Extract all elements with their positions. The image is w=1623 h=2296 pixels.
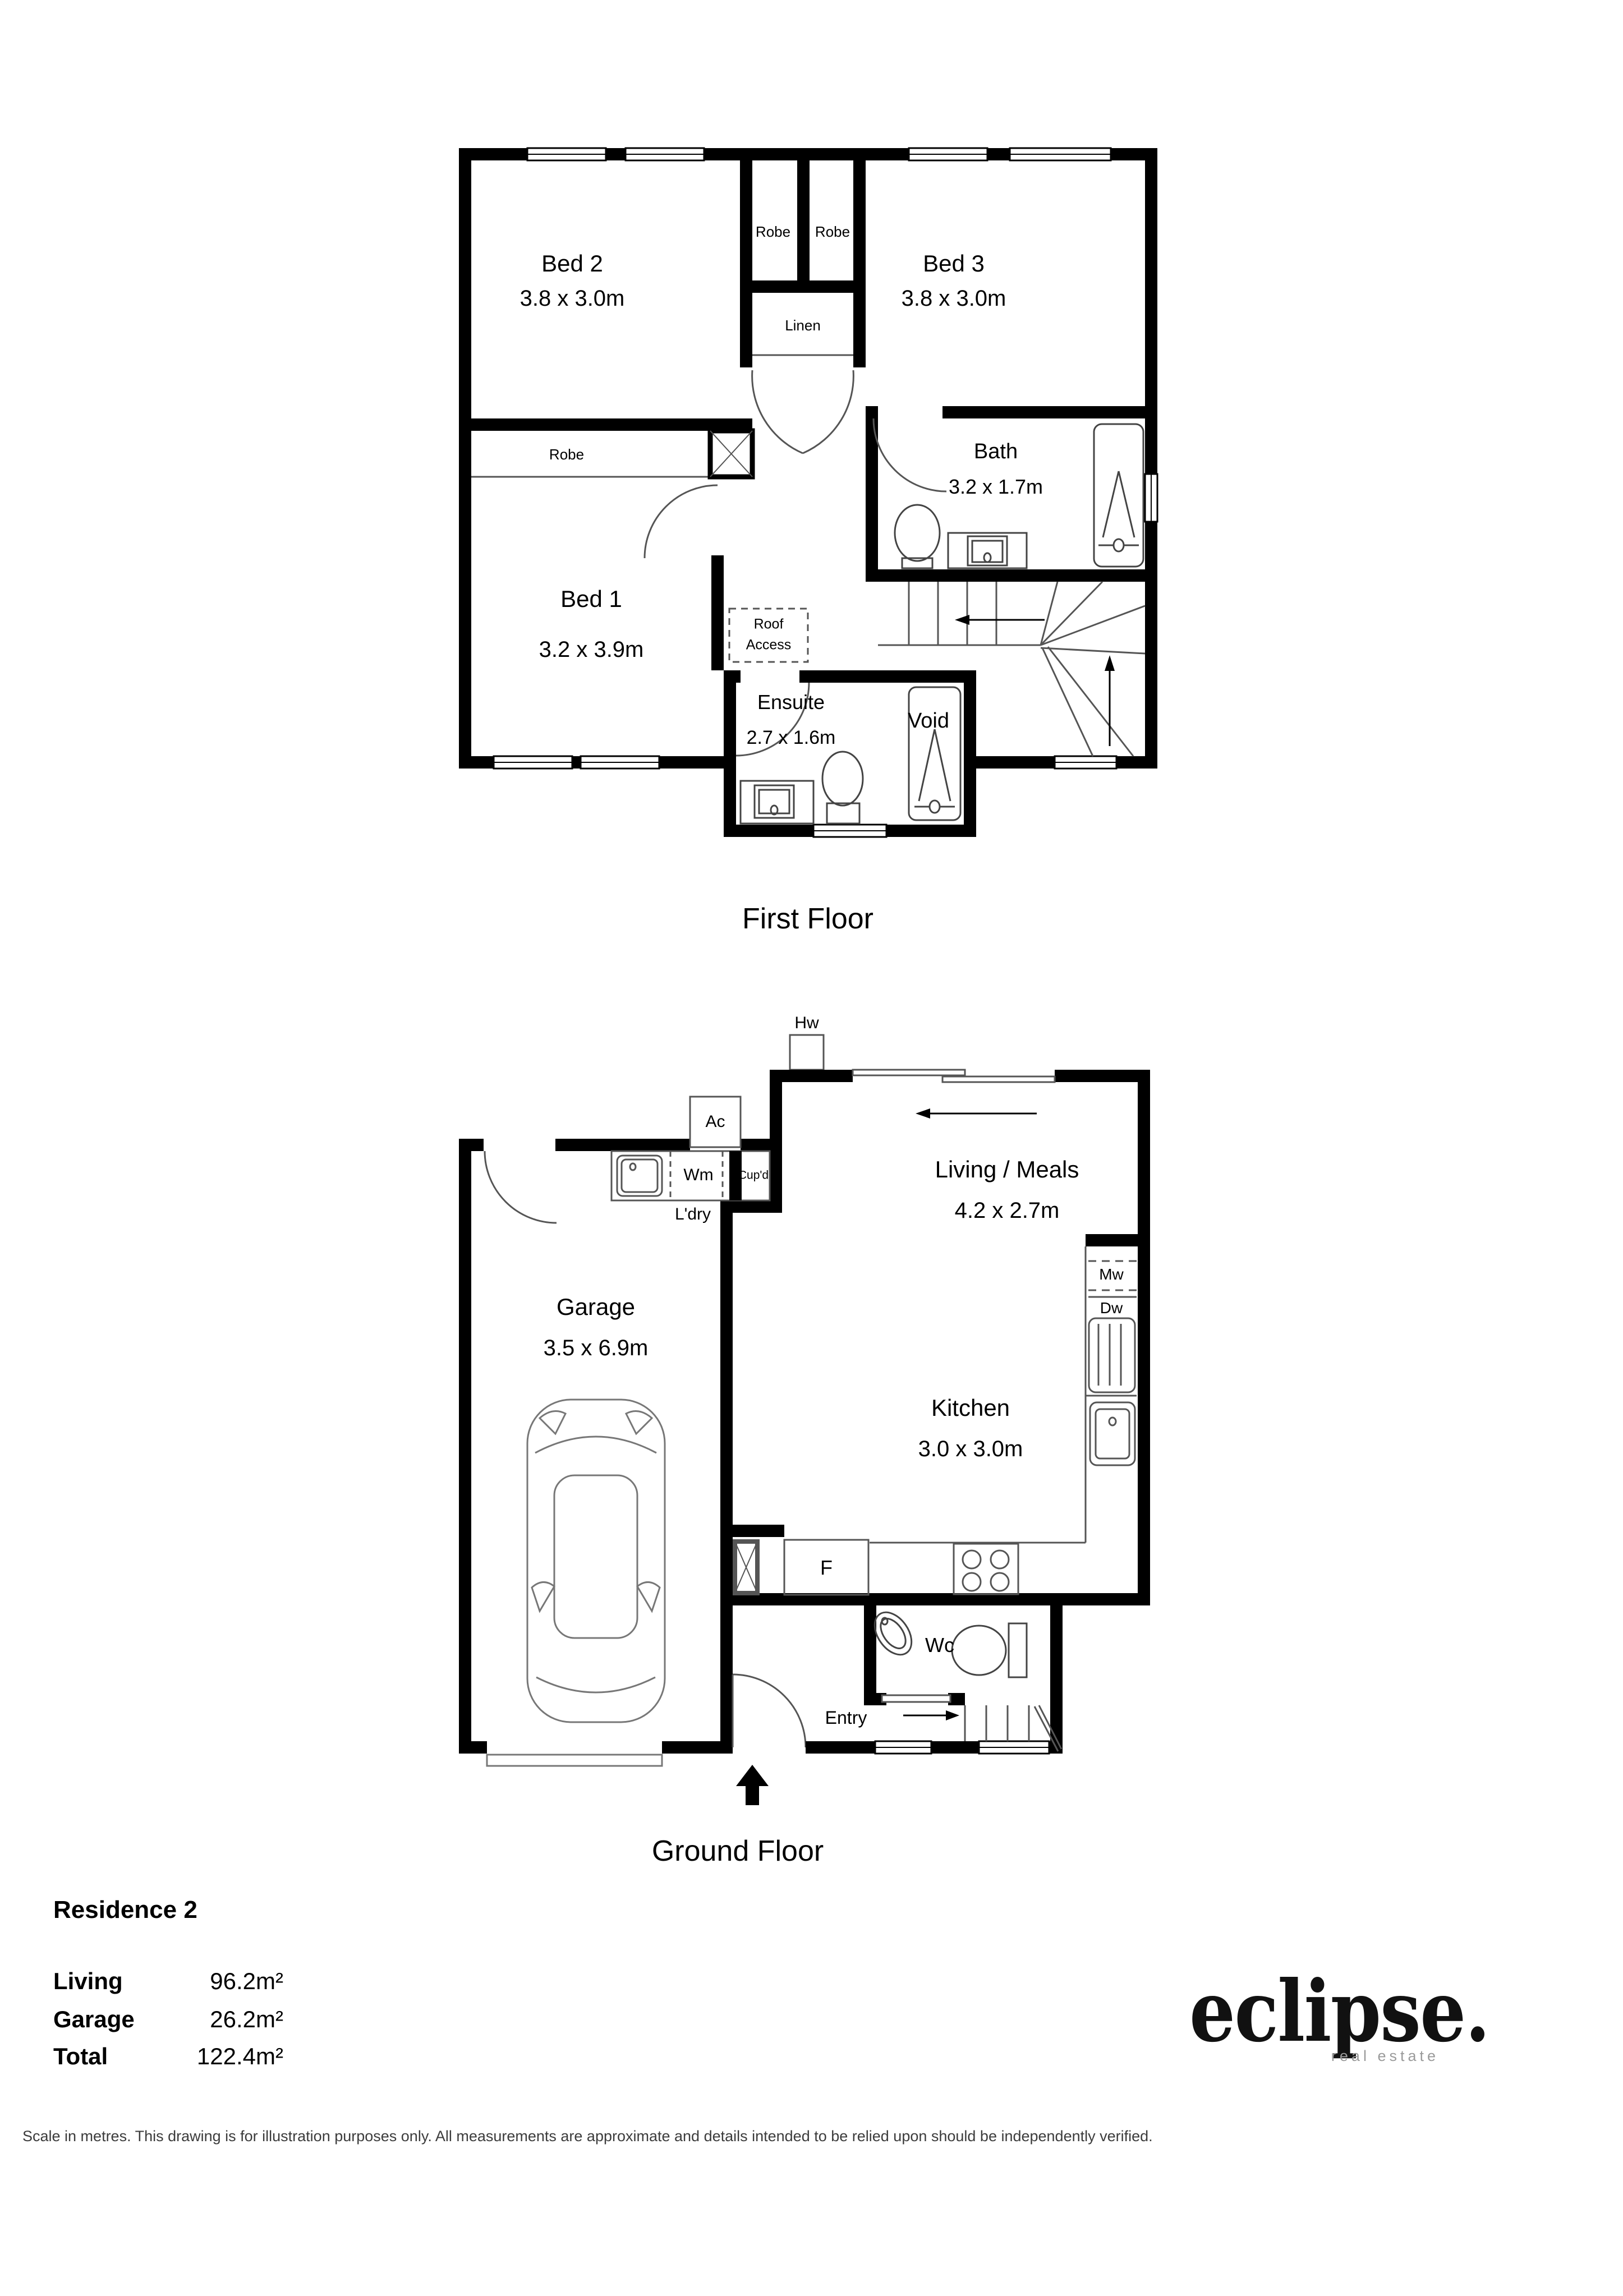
ensuite-dims: 2.7 x 1.6m [747, 728, 836, 747]
ground-floor-title: Ground Floor [652, 1837, 824, 1866]
summary-row-total: Total 122.4m² [53, 2043, 283, 2070]
floorplan-drawing [0, 0, 1623, 2296]
air-con-label: Ac [705, 1114, 725, 1130]
fridge-label: F [820, 1558, 833, 1578]
hot-water-label: Hw [794, 1015, 819, 1032]
summary-label: Garage [53, 2006, 135, 2033]
summary-value: 26.2m² [210, 2006, 283, 2033]
hot-water-unit [790, 1035, 824, 1070]
front-door-arc [733, 1674, 806, 1747]
robe-bed1-label: Robe [549, 447, 584, 462]
first-floor-title: First Floor [742, 904, 873, 933]
bath-label: Bath [974, 441, 1018, 462]
washing-machine-label: Wm [683, 1167, 713, 1184]
brand-tagline: real estate [1265, 2047, 1439, 2065]
bath-dims: 3.2 x 1.7m [949, 477, 1043, 497]
cupboard-label: Cup'd [738, 1170, 769, 1181]
residence-title: Residence 2 [53, 1896, 197, 1925]
microwave-label: Mw [1099, 1267, 1124, 1282]
dishwasher-label: Dw [1100, 1300, 1123, 1316]
kitchen-dims: 3.0 x 3.0m [918, 1438, 1023, 1460]
bed3-dims: 3.8 x 3.0m [902, 287, 1006, 310]
car [527, 1400, 665, 1722]
void-label: Void [908, 710, 949, 731]
floorplan-page: { "first_floor": { "title": "First Floor… [0, 0, 1623, 2296]
kitchen-label: Kitchen [931, 1396, 1010, 1420]
summary-row-garage: Garage 26.2m² [53, 2006, 283, 2033]
wc-label: Wc [925, 1635, 954, 1655]
robe-bed2-label: Robe [756, 224, 790, 239]
ensuite-label: Ensuite [757, 692, 825, 712]
bed3-label: Bed 3 [923, 252, 985, 275]
ground-floor-plan [459, 1035, 1150, 1805]
summary-value: 96.2m² [210, 1968, 283, 1995]
living-label: Living / Meals [935, 1158, 1079, 1181]
living-dims: 4.2 x 2.7m [955, 1199, 1060, 1222]
door-arc [485, 1151, 557, 1223]
brand-logo: eclipse. [1189, 1962, 1489, 2061]
sliding-door [853, 1070, 1055, 1119]
bed2-dims: 3.8 x 3.0m [520, 287, 625, 310]
summary-row-living: Living 96.2m² [53, 1968, 283, 1995]
linen-label: Linen [785, 318, 821, 333]
summary-value: 122.4m² [197, 2043, 283, 2070]
summary-label: Living [53, 1968, 123, 1995]
bed1-label: Bed 1 [560, 587, 622, 611]
roof-access-label-line2: Access [746, 638, 792, 652]
bed1-dims: 3.2 x 3.9m [539, 638, 644, 661]
entry-arrow [736, 1765, 769, 1805]
garage-door [487, 1755, 662, 1766]
garage-dims: 3.5 x 6.9m [544, 1337, 649, 1359]
laundry-label: L'dry [675, 1206, 711, 1223]
robe-bed3-label: Robe [815, 224, 850, 239]
bed2-label: Bed 2 [541, 252, 603, 275]
entry-label: Entry [825, 1709, 867, 1727]
disclaimer-text: Scale in metres. This drawing is for ill… [22, 2128, 1153, 2145]
roof-access-label-line1: Roof [754, 618, 784, 632]
garage-label: Garage [557, 1295, 635, 1319]
summary-label: Total [53, 2043, 108, 2070]
